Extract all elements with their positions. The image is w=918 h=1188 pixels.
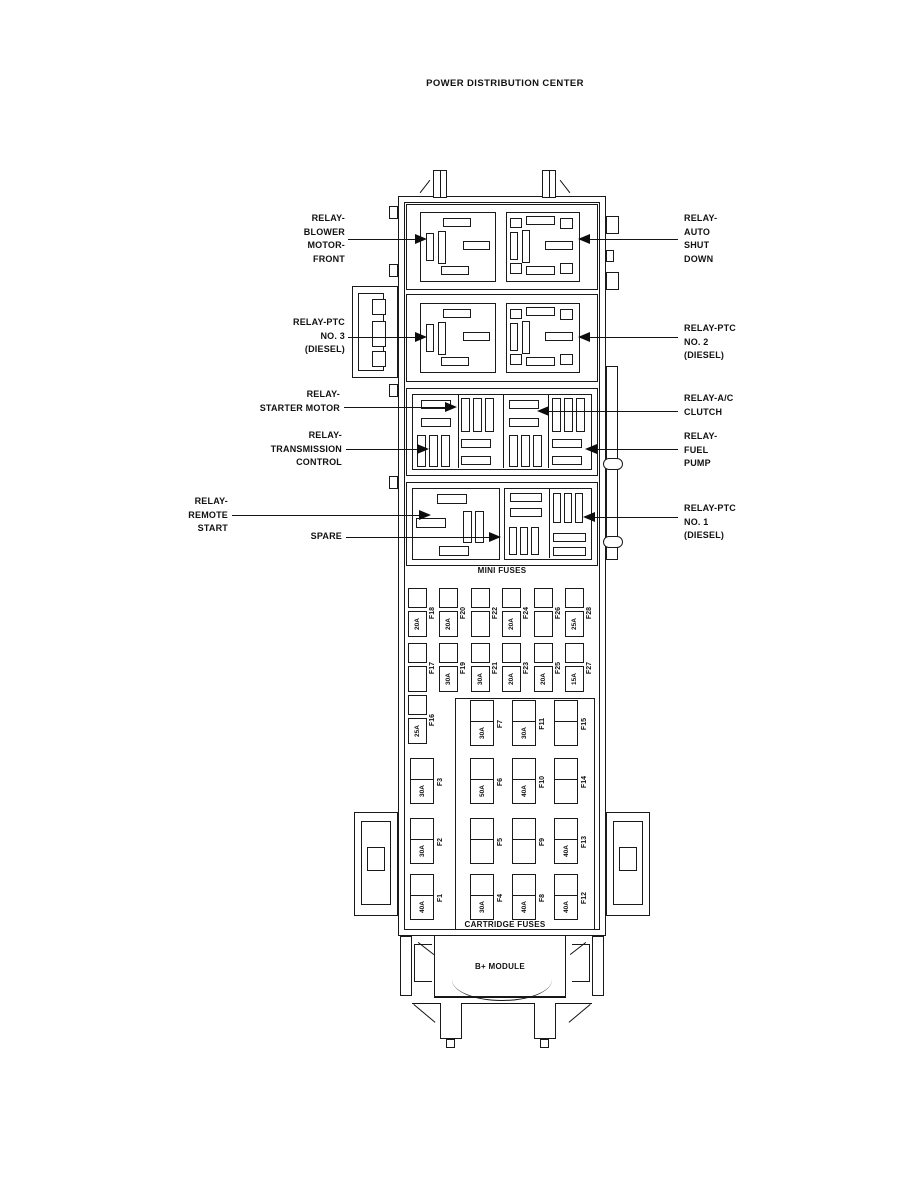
mount-tab — [389, 264, 398, 277]
b-module-side-wall — [400, 936, 412, 996]
leg-strut — [413, 1004, 435, 1023]
fuse-label: F22 — [492, 596, 499, 630]
leader-line — [348, 337, 416, 338]
top-post-right-line — [549, 170, 550, 198]
page-title: POWER DISTRIBUTION CENTER — [340, 78, 670, 89]
relay-pin — [437, 494, 467, 504]
arrowhead — [537, 406, 549, 416]
leader-line — [549, 411, 678, 412]
relay-pin — [576, 398, 585, 432]
fuse-F7: 30A F7 — [470, 700, 510, 748]
fuse-amp: 15A — [571, 673, 578, 685]
arrowhead — [415, 332, 427, 342]
fuse-label: F16 — [429, 703, 436, 737]
fuse-amp-box: 30A — [471, 666, 490, 692]
fuse-F5: F5 — [470, 818, 510, 866]
fuse-amp: 25A — [414, 725, 421, 737]
fuse-amp: 30A — [477, 673, 484, 685]
fuse-label: F9 — [539, 824, 546, 860]
relay-pin — [510, 263, 522, 274]
mount-tab — [389, 384, 398, 397]
relay-pin — [441, 357, 469, 366]
leader-line — [346, 537, 490, 538]
relay-pin — [509, 418, 539, 427]
relay-ptc-no2-module — [506, 303, 580, 373]
bracket-slot — [372, 299, 386, 315]
fuse-label: F17 — [429, 651, 436, 685]
leader-line — [348, 239, 416, 240]
fuse-label: F19 — [460, 651, 467, 685]
fuse-amp-box: 15A — [565, 666, 584, 692]
relay-pin — [510, 508, 542, 517]
fuse-label: F28 — [586, 596, 593, 630]
hatch-mark — [560, 180, 571, 193]
fuse-body — [470, 818, 494, 840]
fuse-F15: F15 — [554, 700, 594, 748]
relay-pin — [510, 493, 542, 502]
fuse-F13: 40A F13 — [554, 818, 594, 866]
mount-tab — [389, 206, 398, 219]
fuse-F27: 15A F27 — [565, 643, 605, 693]
fuse-body — [470, 700, 494, 722]
relay-pin — [521, 435, 530, 467]
fuse-body — [439, 643, 458, 663]
relay-pin — [553, 547, 586, 556]
callout-relay-blower-motor-front: RELAY- BLOWER MOTOR- FRONT — [304, 212, 345, 266]
fuse-label: F21 — [492, 651, 499, 685]
fuse-amp-box: 20A — [408, 611, 427, 637]
fuse-label: F20 — [460, 596, 467, 630]
fuse-amp-box — [408, 666, 427, 692]
relay-pin — [533, 435, 542, 467]
relay-pin — [438, 231, 446, 264]
callout-relay-ptc-no2: RELAY-PTC NO. 2 (DIESEL) — [684, 322, 736, 363]
bracket-slot — [367, 847, 385, 871]
fuse-amp-box — [471, 611, 490, 637]
fuse-amp-box: 30A — [470, 721, 494, 746]
relay-pin — [438, 322, 446, 355]
relay-pin — [520, 527, 528, 555]
relay-pin — [509, 435, 518, 467]
relay-blower-motor-front-module — [420, 212, 496, 282]
relay-pin — [553, 533, 586, 542]
fuse-amp-box — [554, 779, 578, 804]
fuse-label: F12 — [581, 880, 588, 916]
arrowhead — [417, 444, 429, 454]
fuse-amp-box: 40A — [512, 895, 536, 920]
fuse-amp: 30A — [479, 727, 486, 739]
fuse-label: F26 — [555, 596, 562, 630]
arrowhead — [419, 510, 431, 520]
relay-pin — [553, 493, 561, 523]
fuse-amp: 40A — [563, 901, 570, 913]
relay-remote-start-module — [412, 488, 500, 560]
relay-pin — [473, 398, 482, 432]
relay-pin — [552, 439, 582, 448]
fuse-amp-box: 50A — [470, 779, 494, 804]
fuse-amp: 40A — [521, 901, 528, 913]
spare-and-ptc-no1-module — [504, 488, 592, 560]
relay-pin — [531, 527, 539, 555]
power-distribution-center-diagram: POWER DISTRIBUTION CENTER — [0, 0, 918, 1188]
relay-pin — [461, 398, 470, 432]
mount-tab — [389, 476, 398, 489]
fuse-amp-box: 20A — [534, 666, 553, 692]
leg-foot — [446, 1039, 455, 1048]
leader-line — [595, 517, 678, 518]
arrowhead — [578, 332, 590, 342]
b-module-label: B+ MODULE — [475, 962, 525, 971]
fuse-amp: 20A — [508, 618, 515, 630]
fuse-body — [410, 758, 434, 780]
fuse-amp: 40A — [419, 901, 426, 913]
relay-pin — [429, 435, 438, 467]
fuse-amp: 30A — [445, 673, 452, 685]
relay-pin — [560, 354, 573, 365]
fuse-label: F15 — [581, 706, 588, 742]
relay-pin — [522, 321, 530, 354]
fuse-body — [554, 758, 578, 780]
fuse-amp-box — [512, 839, 536, 864]
relay-pin — [510, 309, 522, 319]
fuse-body — [408, 695, 427, 715]
fuse-F14: F14 — [554, 758, 594, 806]
fuse-amp-box: 30A — [512, 721, 536, 746]
fuse-body — [410, 818, 434, 840]
fuse-label: F24 — [523, 596, 530, 630]
leg-foot — [540, 1039, 549, 1048]
relay-pin — [426, 233, 434, 261]
divider — [503, 395, 504, 468]
fuse-label: F4 — [497, 880, 504, 916]
callout-relay-remote-start: RELAY- REMOTE START — [188, 495, 228, 536]
relay-pin — [463, 511, 472, 543]
callout-relay-starter-motor: RELAY- STARTER MOTOR — [260, 388, 340, 415]
relay-pin — [526, 307, 555, 316]
fuse-label: F2 — [437, 824, 444, 860]
b-module-base-line — [412, 1003, 592, 1004]
fuse-amp-box — [554, 721, 578, 746]
fuse-label: F18 — [429, 596, 436, 630]
arrowhead — [415, 234, 427, 244]
fuse-body — [565, 588, 584, 608]
leader-line — [590, 337, 678, 338]
relay-pin — [461, 439, 491, 448]
fuse-amp-box: 40A — [554, 895, 578, 920]
leader-line — [346, 449, 418, 450]
fuse-body — [512, 874, 536, 896]
fuse-amp: 25A — [571, 618, 578, 630]
fuse-body — [512, 818, 536, 840]
fuse-amp-box: 40A — [554, 839, 578, 864]
relay-auto-shut-down-module — [506, 212, 580, 282]
relay-pin — [461, 456, 491, 465]
fuse-amp: 30A — [419, 845, 426, 857]
fuse-body — [408, 643, 427, 663]
arrowhead — [445, 402, 457, 412]
fuse-F6: 50A F6 — [470, 758, 510, 806]
fuse-F12: 40A F12 — [554, 874, 594, 922]
fuse-label: F13 — [581, 824, 588, 860]
fuse-amp: 20A — [445, 618, 452, 630]
relay-pin — [426, 324, 434, 352]
fuse-body — [534, 588, 553, 608]
rail-lug — [603, 458, 623, 470]
fuse-label: F25 — [555, 651, 562, 685]
fuse-amp: 40A — [563, 845, 570, 857]
fuse-amp-box: 25A — [408, 718, 427, 744]
cartridge-fuses-label: CARTRIDGE FUSES — [430, 920, 580, 929]
callout-relay-auto-shut-down: RELAY- AUTO SHUT DOWN — [684, 212, 717, 266]
fuse-amp: 30A — [521, 727, 528, 739]
fuse-F9: F9 — [512, 818, 552, 866]
relay-pin — [441, 266, 469, 275]
arrowhead — [489, 532, 501, 542]
micro-relay-block — [412, 394, 592, 470]
bracket-slot — [372, 321, 386, 347]
leg-strut — [569, 1004, 591, 1023]
relay-pin — [545, 241, 573, 250]
arrowhead — [578, 234, 590, 244]
fuse-amp-box: 40A — [512, 779, 536, 804]
callout-relay-ac-clutch: RELAY-A/C CLUTCH — [684, 392, 733, 419]
fuse-label: F11 — [539, 706, 546, 742]
fuse-amp: 50A — [479, 785, 486, 797]
fuse-amp-box: 20A — [502, 611, 521, 637]
relay-pin — [564, 398, 573, 432]
b-module-side-wall — [592, 936, 604, 996]
relay-pin — [560, 309, 573, 320]
fuse-label: F7 — [497, 706, 504, 742]
fuse-body — [554, 700, 578, 722]
relay-pin — [526, 216, 555, 225]
hatch-mark — [420, 180, 431, 193]
bracket-slot — [619, 847, 637, 871]
fuse-amp-box: 20A — [439, 611, 458, 637]
relay-pin — [509, 400, 539, 409]
mini-fuses-label: MINI FUSES — [404, 566, 600, 575]
fuse-amp: 30A — [419, 785, 426, 797]
relay-pin — [475, 511, 484, 543]
fuse-F11: 30A F11 — [512, 700, 552, 748]
fuse-amp-box: 30A — [439, 666, 458, 692]
relay-pin — [545, 332, 573, 341]
fuse-F10: 40A F10 — [512, 758, 552, 806]
fuse-body — [471, 588, 490, 608]
fuse-label: F6 — [497, 764, 504, 800]
fuse-body — [410, 874, 434, 896]
top-post-left-line — [440, 170, 441, 198]
relay-pin — [421, 418, 451, 427]
fuse-label: F10 — [539, 764, 546, 800]
leader-line — [597, 449, 678, 450]
relay-pin — [510, 218, 522, 228]
relay-pin — [439, 546, 469, 556]
relay-pin — [509, 527, 517, 555]
relay-pin — [552, 456, 582, 465]
fuse-label: F23 — [523, 651, 530, 685]
divider — [549, 489, 550, 558]
fuse-label: F3 — [437, 764, 444, 800]
arrowhead — [583, 512, 595, 522]
callout-relay-transmission-control: RELAY- TRANSMISSION CONTROL — [271, 429, 342, 470]
relay-pin — [526, 266, 555, 275]
relay-pin — [463, 241, 490, 250]
fuse-amp: 20A — [414, 618, 421, 630]
relay-ptc-no3-module — [420, 303, 496, 373]
relay-pin — [463, 332, 490, 341]
mount-tab — [606, 216, 619, 234]
fuse-amp: 20A — [540, 673, 547, 685]
fuse-body — [512, 700, 536, 722]
relay-pin — [552, 398, 561, 432]
fuse-body — [502, 643, 521, 663]
callout-relay-fuel-pump: RELAY- FUEL PUMP — [684, 430, 717, 471]
relay-pin — [522, 230, 530, 263]
fuse-body — [408, 588, 427, 608]
callout-spare: SPARE — [311, 530, 342, 544]
fuse-F2: 30A F2 — [410, 818, 450, 866]
fuse-amp-box — [534, 611, 553, 637]
leader-line — [344, 407, 446, 408]
mount-tab — [606, 272, 619, 290]
fuse-body — [439, 588, 458, 608]
relay-pin — [526, 357, 555, 366]
relay-pin — [560, 263, 573, 274]
mount-tab — [606, 250, 614, 262]
fuse-label: F8 — [539, 880, 546, 916]
fuse-amp-box: 30A — [410, 839, 434, 864]
leader-line — [590, 239, 678, 240]
fuse-F28: 25A F28 — [565, 588, 605, 638]
fuse-F16: 25A F16 — [408, 695, 448, 745]
relay-pin — [443, 309, 471, 318]
relay-pin — [510, 232, 518, 260]
fuse-F8: 40A F8 — [512, 874, 552, 922]
fuse-F3: 30A F3 — [410, 758, 450, 806]
leg — [440, 1003, 462, 1039]
fuse-F4: 30A F4 — [470, 874, 510, 922]
fuse-body — [470, 758, 494, 780]
relay-pin — [564, 493, 572, 523]
relay-pin — [510, 323, 518, 351]
fuse-body — [554, 874, 578, 896]
relay-pin — [510, 354, 522, 365]
relay-pin — [443, 218, 471, 227]
fuse-body — [554, 818, 578, 840]
rail-lug — [603, 536, 623, 548]
fuse-amp-box: 30A — [410, 779, 434, 804]
arrowhead — [585, 444, 597, 454]
fuse-amp-box: 40A — [410, 895, 434, 920]
divider — [458, 395, 459, 468]
fuse-body — [512, 758, 536, 780]
relay-pin — [575, 493, 583, 523]
fuse-amp-box: 20A — [502, 666, 521, 692]
fuse-label: F14 — [581, 764, 588, 800]
relay-pin — [441, 435, 450, 467]
relay-pin — [560, 218, 573, 229]
fuse-amp-box: 25A — [565, 611, 584, 637]
fuse-amp: 30A — [479, 901, 486, 913]
fuse-body — [471, 643, 490, 663]
leader-line — [232, 515, 420, 516]
relay-pin — [485, 398, 494, 432]
bracket-slot — [372, 351, 386, 367]
fuse-label: F1 — [437, 880, 444, 916]
fuse-body — [470, 874, 494, 896]
fuse-amp: 20A — [508, 673, 515, 685]
fuse-amp: 40A — [521, 785, 528, 797]
fuse-amp-box: 30A — [470, 895, 494, 920]
fuse-label: F27 — [586, 651, 593, 685]
fuse-body — [534, 643, 553, 663]
leg — [534, 1003, 556, 1039]
fuse-amp-box — [470, 839, 494, 864]
callout-relay-ptc-no1: RELAY-PTC NO. 1 (DIESEL) — [684, 502, 736, 543]
fuse-body — [502, 588, 521, 608]
fuse-body — [565, 643, 584, 663]
fuse-F1: 40A F1 — [410, 874, 450, 922]
callout-relay-ptc-no3: RELAY-PTC NO. 3 (DIESEL) — [293, 316, 345, 357]
fuse-label: F5 — [497, 824, 504, 860]
